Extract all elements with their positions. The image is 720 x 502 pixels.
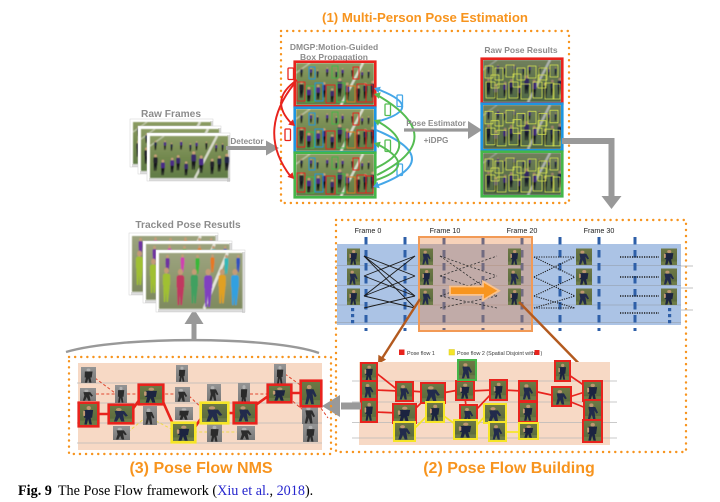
svg-text:(2) Pose Flow Building: (2) Pose Flow Building bbox=[423, 460, 595, 477]
svg-text:Frame 20: Frame 20 bbox=[507, 226, 538, 235]
svg-text:+iDPG: +iDPG bbox=[424, 136, 449, 145]
svg-text:Frame 30: Frame 30 bbox=[584, 226, 615, 235]
svg-text:): ) bbox=[541, 351, 543, 357]
svg-text:Tracked Pose Resutls: Tracked Pose Resutls bbox=[135, 220, 241, 231]
svg-text:Frame 0: Frame 0 bbox=[355, 226, 382, 235]
svg-text:Pose flow 1: Pose flow 1 bbox=[407, 351, 435, 357]
svg-text:Pose flow 2 (Spatial Disjoint: Pose flow 2 (Spatial Disjoint with bbox=[457, 351, 535, 357]
svg-text:Pose Estimator: Pose Estimator bbox=[406, 119, 466, 128]
svg-text:Fig. 9The Pose Flow framework: Fig. 9The Pose Flow framework (Xiu et al… bbox=[18, 483, 313, 499]
svg-text:Raw Pose Results: Raw Pose Results bbox=[484, 45, 557, 55]
svg-text:DMGP:Motion-Guided: DMGP:Motion-Guided bbox=[290, 42, 378, 52]
svg-text:Detector: Detector bbox=[230, 137, 264, 146]
svg-text:Frame 10: Frame 10 bbox=[430, 226, 461, 235]
svg-text:Raw Frames: Raw Frames bbox=[141, 109, 201, 120]
svg-text:(1) Multi-Person Pose Estimati: (1) Multi-Person Pose Estimation bbox=[322, 10, 528, 25]
svg-text:(3) Pose Flow NMS: (3) Pose Flow NMS bbox=[129, 460, 272, 477]
